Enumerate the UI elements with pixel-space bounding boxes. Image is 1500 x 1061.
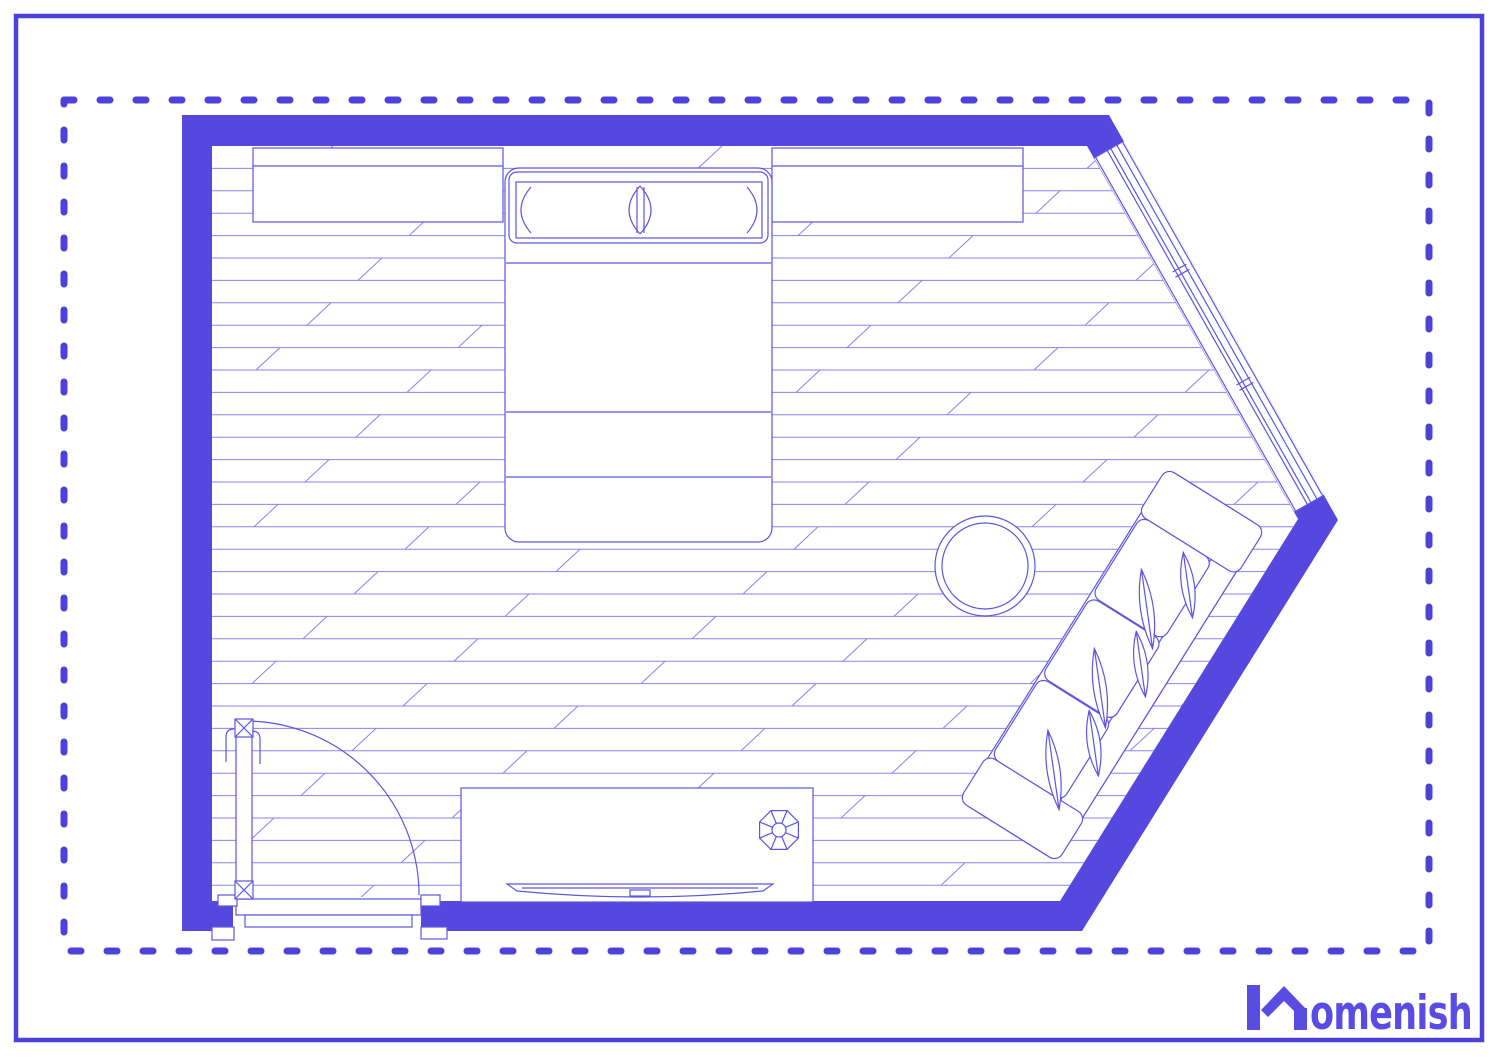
door-hinge: [235, 881, 253, 899]
door-jamb: [218, 895, 237, 906]
desk: [461, 788, 813, 902]
desk-fan: [760, 811, 799, 850]
door-hinge: [235, 719, 253, 737]
door-threshold: [236, 899, 421, 915]
house-icon: [1247, 985, 1307, 1030]
floor-plan-page: omenish: [0, 0, 1500, 1061]
door-jamb: [421, 895, 440, 906]
door-leaf: [236, 721, 252, 899]
wardrobe-left: [253, 148, 503, 222]
floor-plan-canvas: omenish: [0, 0, 1500, 1061]
double-bed: [505, 168, 772, 542]
round-side-table: [935, 516, 1035, 616]
wardrobe-right: [772, 148, 1023, 222]
bed-pillows: [516, 182, 762, 238]
logo-text: omenish: [1310, 986, 1472, 1041]
homenish-logo: omenish: [1247, 985, 1472, 1041]
